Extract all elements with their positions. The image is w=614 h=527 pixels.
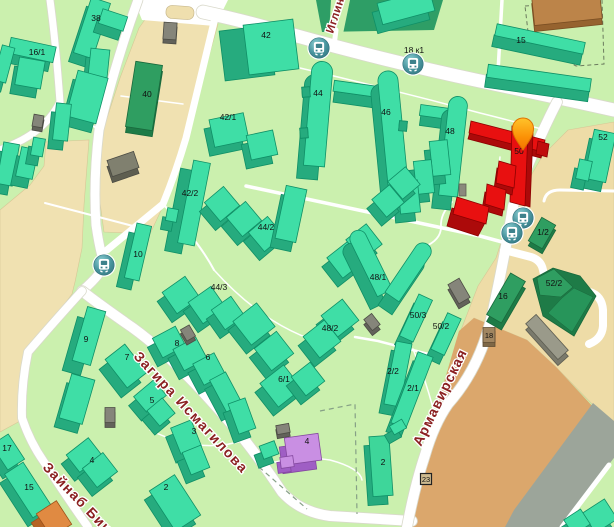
svg-text:44: 44 [313, 88, 323, 98]
svg-text:44/2: 44/2 [258, 222, 275, 232]
svg-text:10: 10 [133, 249, 143, 259]
svg-text:15: 15 [24, 482, 34, 492]
svg-text:9: 9 [84, 334, 89, 344]
svg-text:23: 23 [422, 475, 430, 484]
svg-text:1/2: 1/2 [537, 227, 549, 237]
svg-text:16/1: 16/1 [29, 47, 46, 57]
svg-text:15: 15 [516, 35, 526, 45]
svg-text:42/2: 42/2 [182, 188, 199, 198]
svg-text:6: 6 [206, 352, 211, 362]
svg-text:38: 38 [91, 13, 101, 23]
svg-text:2: 2 [381, 457, 386, 467]
svg-text:52/2: 52/2 [546, 278, 563, 288]
svg-text:17: 17 [2, 443, 12, 453]
svg-text:2/2: 2/2 [387, 366, 399, 376]
svg-text:40: 40 [142, 89, 152, 99]
svg-text:4: 4 [90, 455, 95, 465]
svg-text:8: 8 [175, 338, 180, 348]
svg-text:7: 7 [125, 352, 130, 362]
svg-text:5: 5 [150, 395, 155, 405]
svg-text:52: 52 [598, 132, 608, 142]
svg-text:42: 42 [261, 30, 271, 40]
svg-text:50/2: 50/2 [433, 321, 450, 331]
svg-text:4: 4 [305, 436, 310, 446]
svg-text:6/1: 6/1 [278, 374, 290, 384]
svg-text:46: 46 [381, 107, 391, 117]
svg-text:50/3: 50/3 [410, 310, 427, 320]
svg-text:16: 16 [498, 291, 508, 301]
svg-text:42/1: 42/1 [220, 112, 237, 122]
svg-text:48: 48 [445, 126, 455, 136]
svg-text:48/1: 48/1 [370, 272, 387, 282]
svg-text:44/3: 44/3 [211, 282, 228, 292]
svg-text:48/2: 48/2 [322, 323, 339, 333]
svg-text:2: 2 [164, 482, 169, 492]
svg-text:2/1: 2/1 [407, 383, 419, 393]
svg-text:18: 18 [485, 331, 493, 340]
